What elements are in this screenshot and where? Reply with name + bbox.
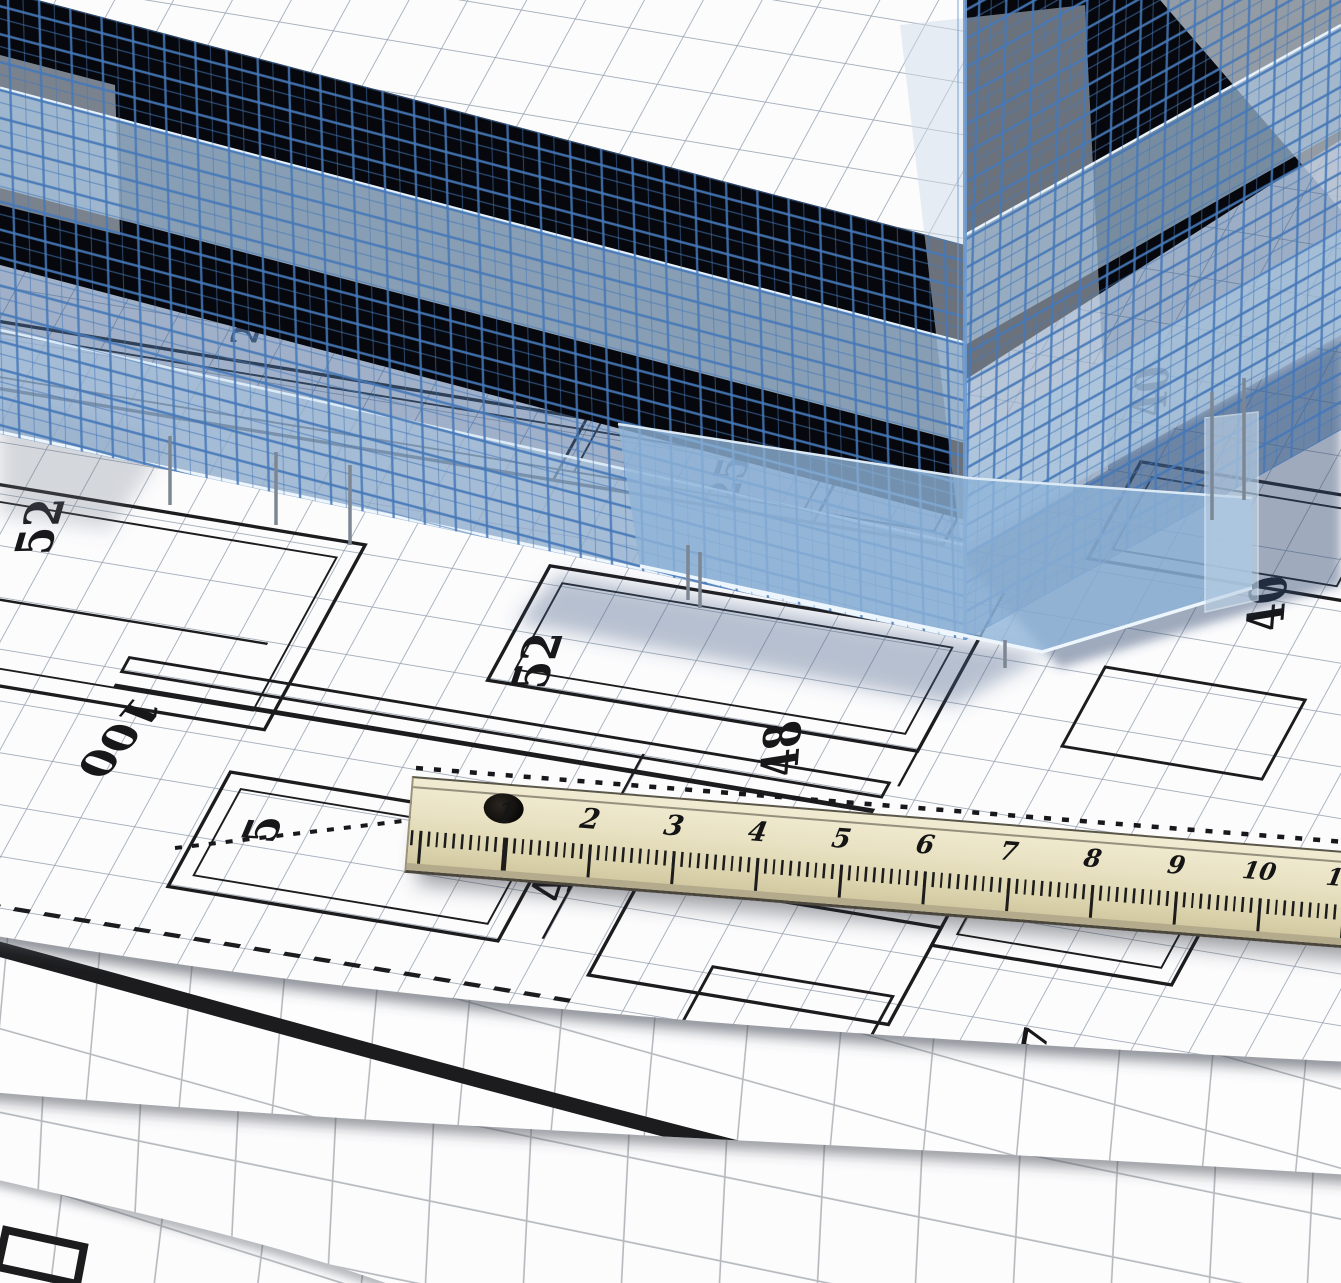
ruler-number: 10 (1241, 858, 1279, 884)
ruler-number: 6 (914, 832, 937, 859)
blueprint-sheet-layer: 24 25 52 100 52 48 40 40 5 48 7 (0, 0, 1341, 1283)
ruler-number: 8 (1082, 845, 1104, 871)
ruler-number: 9 (1165, 852, 1187, 878)
ruler-number: 11 (1324, 865, 1341, 891)
ruler-number: 4 (746, 818, 770, 846)
ruler-number: 1 (494, 798, 519, 828)
ruler-number: 3 (662, 812, 687, 841)
ruler-number: 5 (830, 825, 854, 853)
blueprint-scene: 24 25 52 100 52 48 40 40 5 48 7 (0, 0, 1341, 1283)
ruler-number: 2 (578, 805, 603, 834)
ruler-number: 7 (997, 839, 1020, 866)
dimension-label: 5 (230, 814, 295, 845)
dimension-label: 48 (749, 716, 814, 782)
